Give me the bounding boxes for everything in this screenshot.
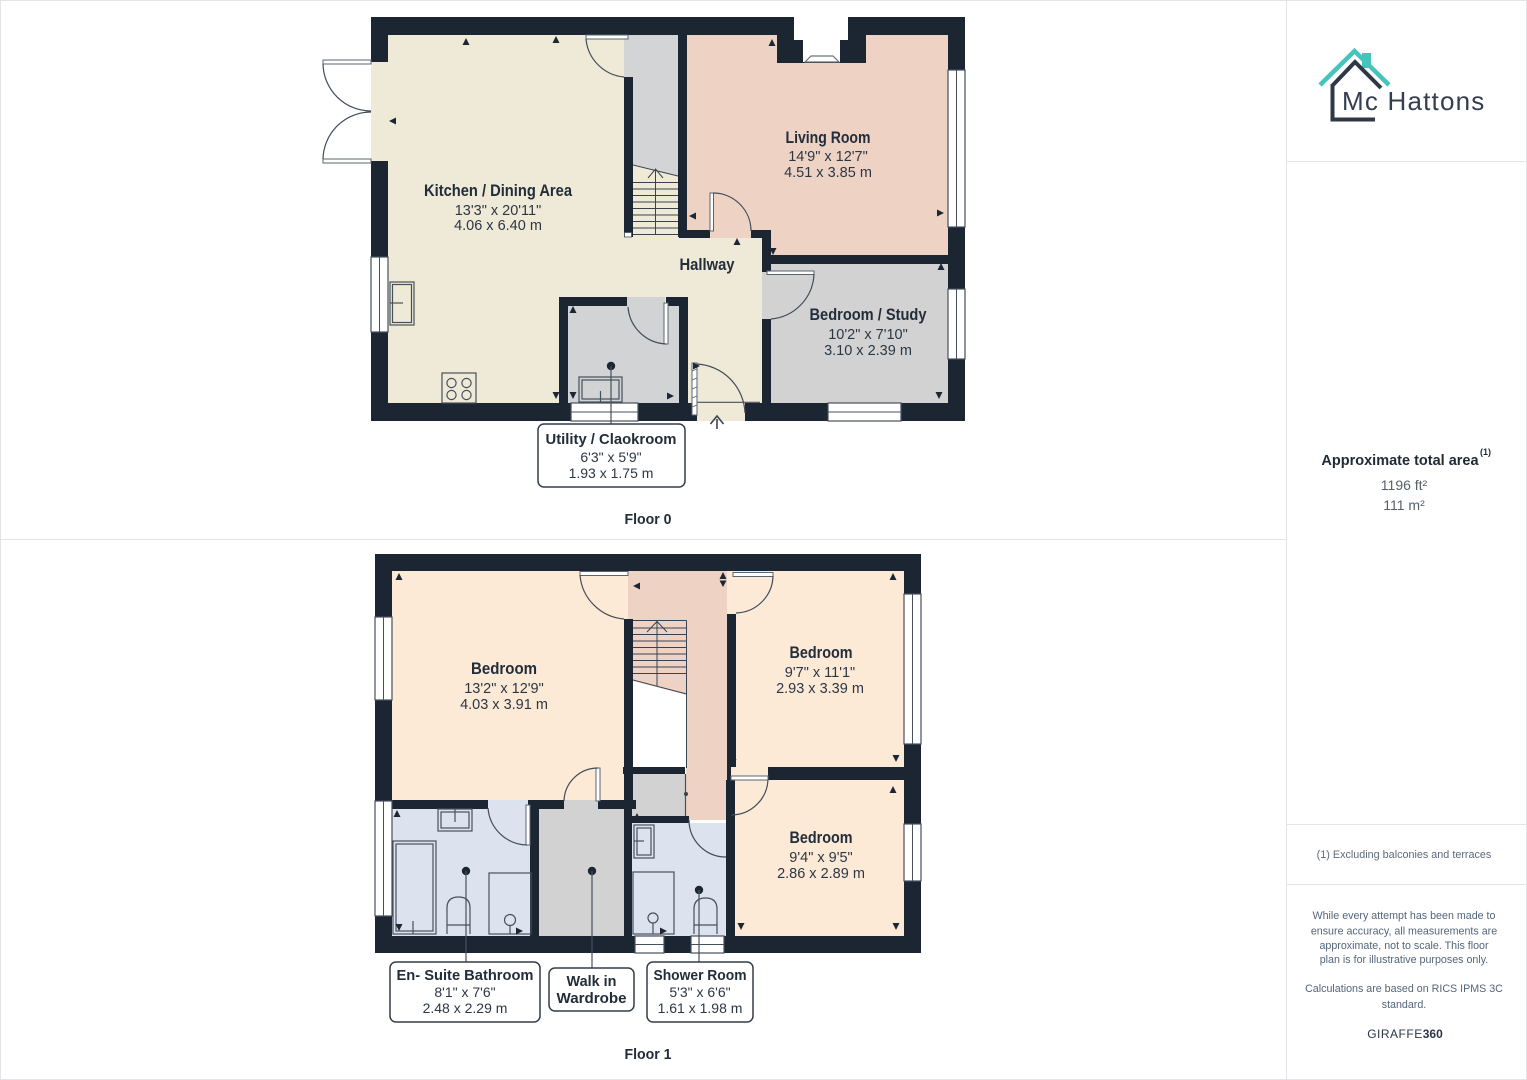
svg-text:Floor 1: Floor 1 xyxy=(625,1046,672,1063)
svg-text:Bedroom: Bedroom xyxy=(790,829,853,847)
svg-text:3.10 x 2.39 m: 3.10 x 2.39 m xyxy=(824,343,912,359)
svg-text:Bedroom: Bedroom xyxy=(471,660,537,678)
svg-text:2.48 x 2.29 m: 2.48 x 2.29 m xyxy=(423,1000,508,1016)
svg-text:ensure accuracy, all measureme: ensure accuracy, all measurements are xyxy=(1311,926,1497,938)
svg-text:1196 ft²: 1196 ft² xyxy=(1381,477,1428,493)
svg-text:111 m²: 111 m² xyxy=(1383,497,1425,513)
svg-text:9'4" x 9'5": 9'4" x 9'5" xyxy=(789,850,852,866)
svg-text:13'3" x 20'11": 13'3" x 20'11" xyxy=(455,203,542,219)
svg-text:Approximate total area: Approximate total area xyxy=(1321,453,1479,469)
svg-text:Shower Room: Shower Room xyxy=(654,967,747,984)
svg-text:1.61 x 1.98 m: 1.61 x 1.98 m xyxy=(658,1000,743,1016)
svg-text:8'1" x 7'6": 8'1" x 7'6" xyxy=(434,984,495,1000)
svg-text:14'9" x 12'7": 14'9" x 12'7" xyxy=(788,149,868,165)
svg-text:6'3" x 5'9": 6'3" x 5'9" xyxy=(580,449,641,465)
svg-text:standard.: standard. xyxy=(1382,999,1427,1011)
svg-text:13'2" x 12'9": 13'2" x 12'9" xyxy=(464,681,544,697)
svg-text:4.03 x 3.91 m: 4.03 x 3.91 m xyxy=(460,697,548,713)
svg-text:Kitchen / Dining Area: Kitchen / Dining Area xyxy=(424,182,573,200)
svg-text:Utility / Claokroom: Utility / Claokroom xyxy=(546,431,677,448)
svg-text:2.93 x 3.39 m: 2.93 x 3.39 m xyxy=(776,681,864,697)
svg-text:5'3" x 6'6": 5'3" x 6'6" xyxy=(669,984,730,1000)
svg-text:4.06 x 6.40 m: 4.06 x 6.40 m xyxy=(454,218,542,234)
svg-text:10'2" x 7'10": 10'2" x 7'10" xyxy=(828,327,908,343)
svg-text:While every attempt has been m: While every attempt has been made to xyxy=(1313,910,1496,922)
svg-text:(1) Excluding balconies and te: (1) Excluding balconies and terraces xyxy=(1317,849,1492,861)
svg-text:9'7" x 11'1": 9'7" x 11'1" xyxy=(785,665,855,681)
svg-text:approximate, not to scale. Thi: approximate, not to scale. This floor xyxy=(1319,940,1489,952)
svg-text:Bedroom / Study: Bedroom / Study xyxy=(810,306,928,324)
svg-text:Mc Hattons: Mc Hattons xyxy=(1342,86,1486,116)
svg-text:Floor 0: Floor 0 xyxy=(625,511,672,528)
svg-text:1.93 x 1.75 m: 1.93 x 1.75 m xyxy=(569,465,654,481)
svg-text:En- Suite Bathroom: En- Suite Bathroom xyxy=(397,967,534,984)
svg-text:Hallway: Hallway xyxy=(680,256,736,274)
svg-text:Wardrobe: Wardrobe xyxy=(557,990,627,1007)
svg-text:GIRAFFE360: GIRAFFE360 xyxy=(1367,1027,1443,1041)
svg-text:2.86 x 2.89 m: 2.86 x 2.89 m xyxy=(777,866,865,882)
svg-text:Walk in: Walk in xyxy=(567,973,617,990)
svg-text:4.51 x 3.85 m: 4.51 x 3.85 m xyxy=(784,165,872,181)
svg-text:Calculations are based on RICS: Calculations are based on RICS IPMS 3C xyxy=(1305,983,1503,995)
svg-text:Bedroom: Bedroom xyxy=(790,644,853,662)
svg-text:Living Room: Living Room xyxy=(786,129,871,147)
svg-text:(1): (1) xyxy=(1480,447,1491,457)
svg-text:plan is for illustrative purpo: plan is for illustrative purposes only. xyxy=(1320,954,1489,966)
